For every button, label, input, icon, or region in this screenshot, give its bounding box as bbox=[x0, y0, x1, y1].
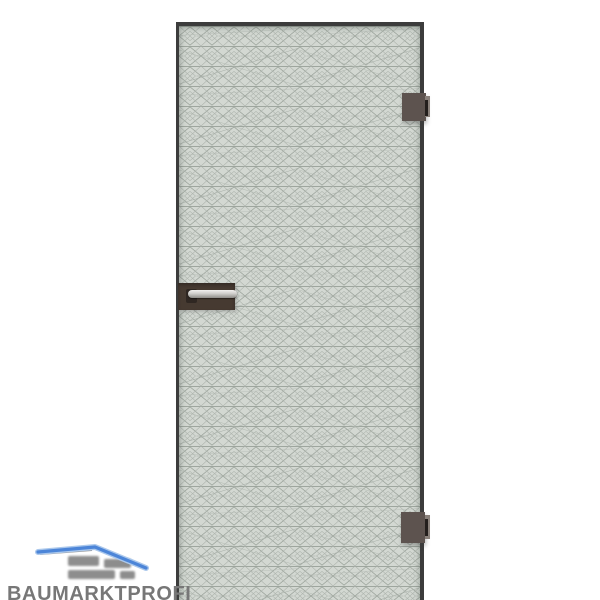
hinge-top-body bbox=[402, 93, 426, 121]
brand-watermark: BAUMARKTPROFI bbox=[0, 535, 220, 600]
hinge-bottom bbox=[401, 512, 430, 543]
hinge-top bbox=[402, 93, 430, 121]
glass-pattern bbox=[179, 26, 420, 600]
hinge-bottom-body bbox=[401, 512, 425, 543]
brand-name: BAUMARKTPROFI bbox=[7, 583, 191, 600]
hinge-top-slot bbox=[425, 100, 428, 116]
door-handle bbox=[178, 283, 237, 310]
roof-logo-icon bbox=[0, 535, 180, 583]
handle-lever bbox=[188, 290, 237, 298]
product-image: BAUMARKTPROFI bbox=[0, 0, 600, 600]
glass-door bbox=[176, 22, 424, 600]
hinge-bottom-slot bbox=[425, 519, 428, 536]
